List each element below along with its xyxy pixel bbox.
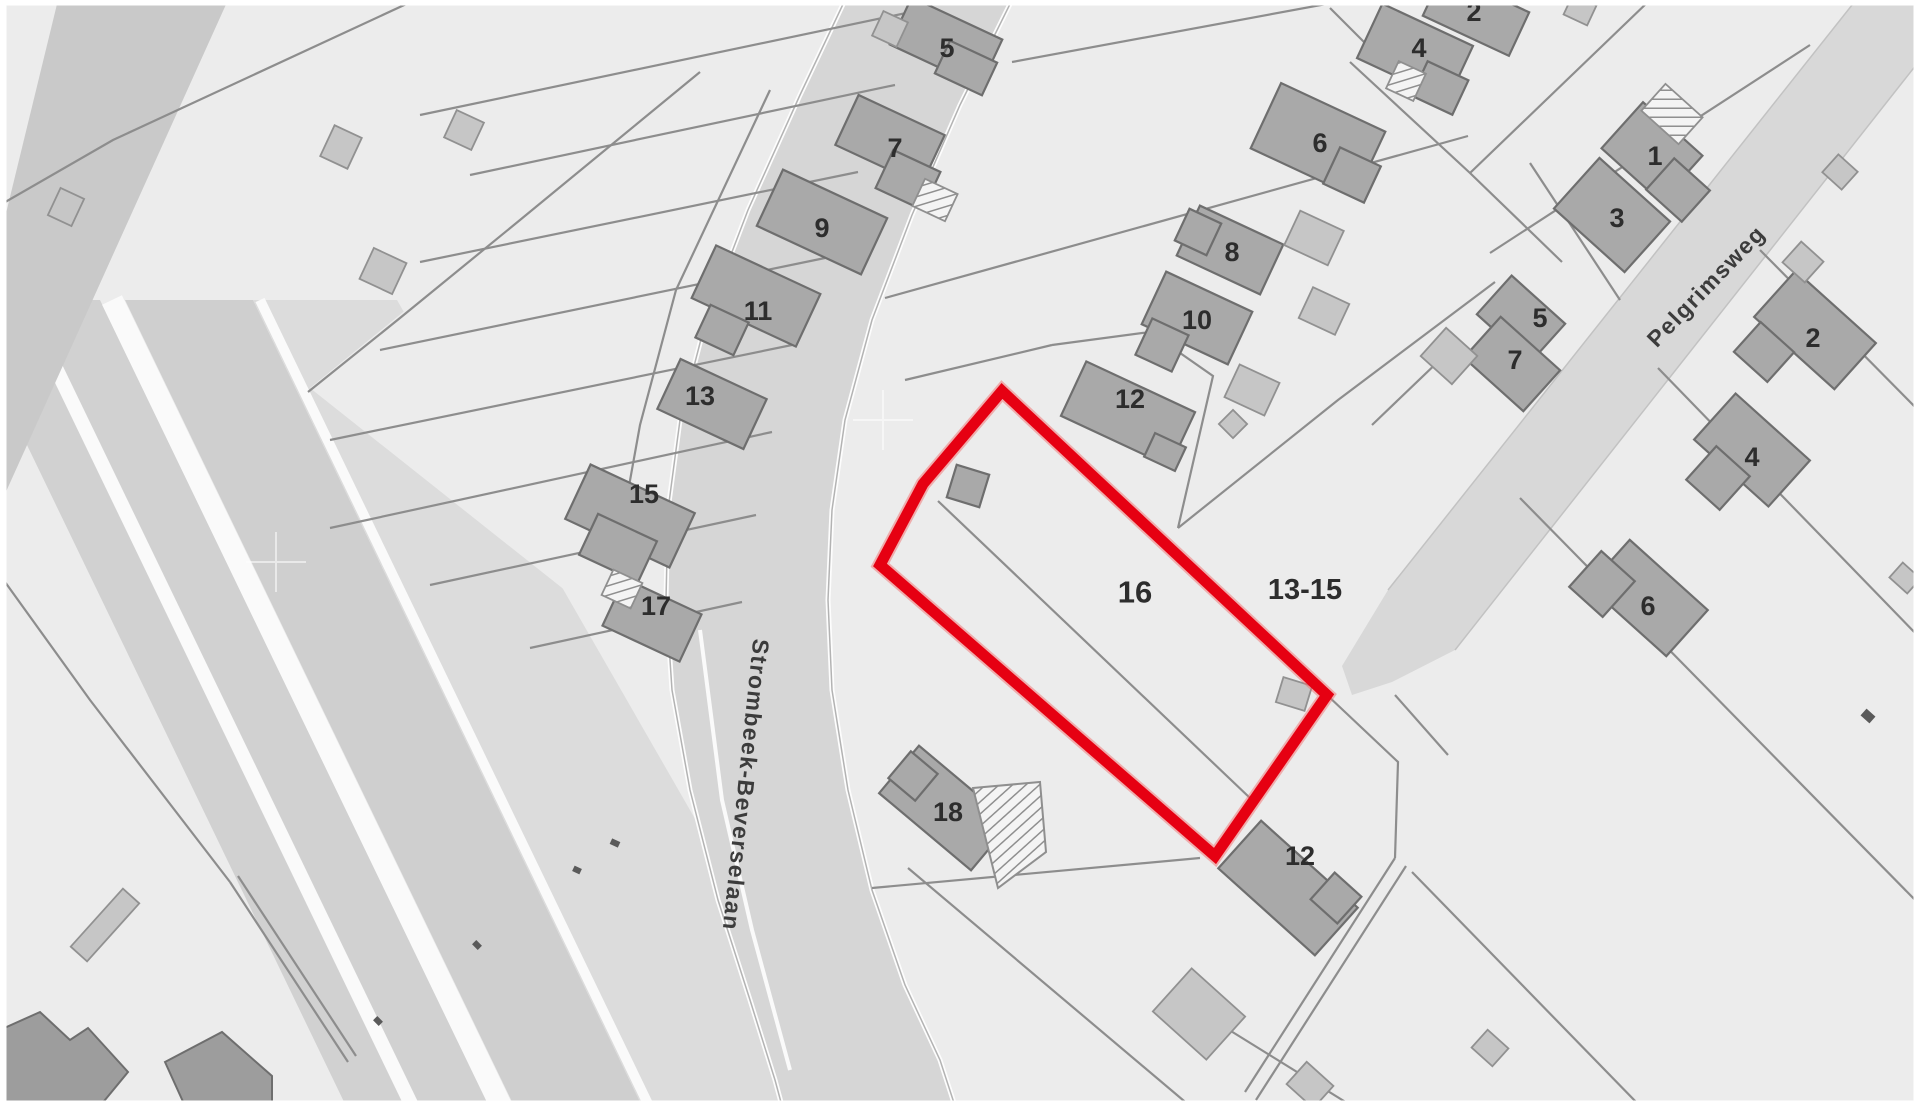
cadastral-map-viewport: 5791113151768101242135724618121613-15Str… — [0, 0, 1920, 1106]
house-number-label: 18 — [933, 797, 963, 827]
house-number-label: 17 — [641, 591, 671, 621]
house-number-label: 6 — [1640, 591, 1655, 621]
house-number-label: 4 — [1411, 33, 1426, 63]
house-number-label: 7 — [887, 133, 902, 163]
house-number-label: 12 — [1285, 841, 1315, 871]
house-number-label: 4 — [1744, 442, 1759, 472]
house-number-label: 8 — [1224, 237, 1239, 267]
adjacent-parcel-label: 13-15 — [1268, 574, 1342, 606]
house-number-label: 5 — [939, 33, 954, 63]
house-number-label: 5 — [1532, 303, 1547, 333]
house-number-label: 11 — [744, 296, 773, 326]
house-number-label: 7 — [1507, 345, 1522, 375]
house-number-label: 2 — [1805, 323, 1820, 353]
house-number-label: 3 — [1609, 203, 1624, 233]
cadastral-map: 5791113151768101242135724618121613-15Str… — [0, 0, 1920, 1106]
house-number-label: 6 — [1312, 128, 1327, 158]
selected-parcel-label: 16 — [1118, 575, 1152, 610]
house-number-label: 13 — [685, 381, 715, 411]
house-number-label: 10 — [1182, 305, 1212, 335]
house-number-label: 15 — [629, 479, 659, 509]
house-number-label: 1 — [1647, 141, 1662, 171]
house-number-label: 12 — [1115, 384, 1145, 414]
house-number-label: 9 — [814, 213, 829, 243]
